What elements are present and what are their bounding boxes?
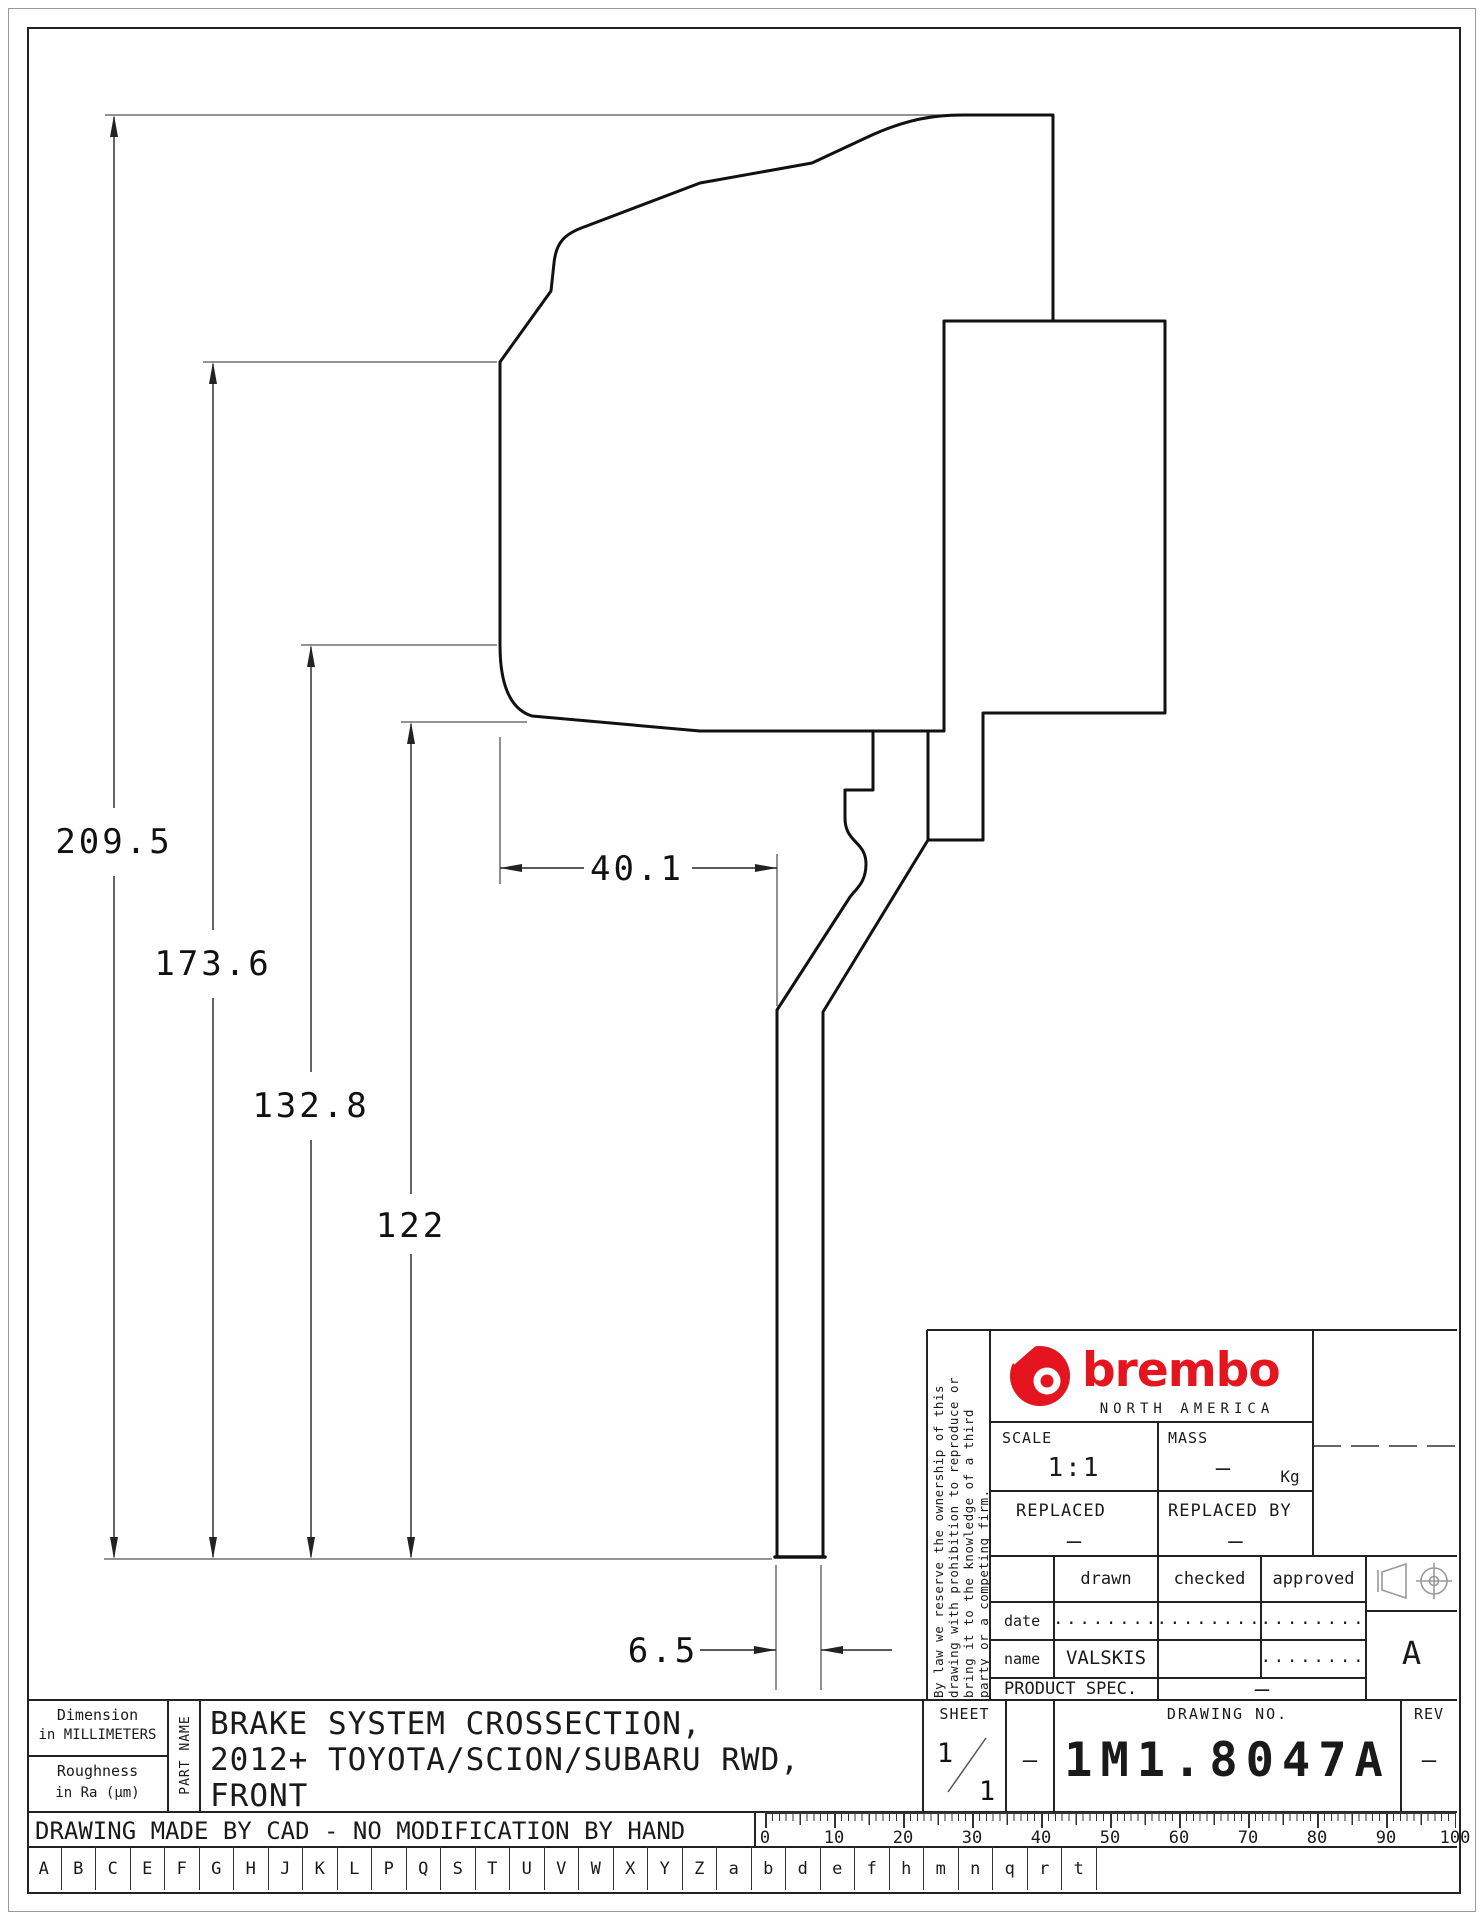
scale-bar-number: 20 <box>893 1828 913 1848</box>
ownership-notice: By law we reserve the ownership of this … <box>929 1332 991 1698</box>
approvals-col-drawn: drawn <box>1054 1560 1158 1598</box>
revision-letter-cell: A <box>27 1847 62 1890</box>
revision-letters-strip: ABCEFGHJKLPQSTUVWXYZabdefhmnqrt <box>27 1847 1457 1890</box>
revision-letter-cell: K <box>303 1847 338 1890</box>
replaced-by-value: – <box>1158 1526 1313 1556</box>
revision-letter-cell: P <box>372 1847 407 1890</box>
revision-letter-cell: H <box>234 1847 269 1890</box>
scale-label: SCALE <box>1002 1428 1152 1448</box>
drawn-by-name: VALSKIS <box>1054 1642 1158 1674</box>
revision-letter-cell: r <box>1028 1847 1063 1890</box>
scale-value: 1:1 <box>990 1450 1158 1486</box>
revision-letter-cell: L <box>338 1847 373 1890</box>
cad-note: DRAWING MADE BY CAD - NO MODIFICATION BY… <box>35 1817 685 1845</box>
ownership-line-2: drawing with prohibition to reproduce or <box>946 1332 961 1698</box>
name-approved-dots: ........ <box>1261 1640 1366 1674</box>
revision-letter-cell: e <box>821 1847 856 1890</box>
revision-letter-cell: W <box>579 1847 614 1890</box>
replaced-by-label: REPLACED BY <box>1168 1500 1318 1522</box>
scale-bar-number: 50 <box>1100 1828 1120 1848</box>
mass-value: – <box>1158 1450 1288 1486</box>
scale-bar-labels: 0102030405060708090100 <box>765 1812 1456 1846</box>
revision-letter-cell: E <box>131 1847 166 1890</box>
replaced-label: REPLACED <box>1016 1500 1156 1522</box>
date-drawn-dots: ........ <box>1054 1602 1158 1636</box>
revision-letter-cell: b <box>752 1847 787 1890</box>
revision-letter-cell: T <box>476 1847 511 1890</box>
ownership-line-3: bring it to the knowledge of a third <box>961 1332 976 1698</box>
extension-lines <box>104 115 958 1690</box>
dim-label-6-5: 6.5 <box>628 1631 698 1671</box>
scale-bar-number: 60 <box>1169 1828 1189 1848</box>
replaced-value: – <box>990 1526 1158 1556</box>
revision-letter-cell: a <box>717 1847 752 1890</box>
approvals-date-label: date <box>1004 1606 1054 1636</box>
revision-letter-cell: t <box>1062 1847 1097 1890</box>
revision-letter-cell: d <box>786 1847 821 1890</box>
scale-bar-number: 0 <box>760 1828 770 1848</box>
revision-letter-cell: n <box>959 1847 994 1890</box>
revision-letter-cell: X <box>614 1847 649 1890</box>
revision-letter-cell: Y <box>648 1847 683 1890</box>
revision-letter-cell: Z <box>683 1847 718 1890</box>
revision-letter-cell: U <box>510 1847 545 1890</box>
part-name-line-2: 2012+ TOYOTA/SCION/SUBARU RWD, <box>210 1742 800 1778</box>
rev-label: REV <box>1401 1704 1457 1724</box>
drawing-sheet: 209.5 173.6 132.8 122 40.1 6.5 <box>0 0 1484 1920</box>
sheet-denominator: 1 <box>979 1776 995 1807</box>
brembo-logo-icon <box>1010 1341 1070 1406</box>
roughness-note-line2: in Ra (μm) <box>27 1784 168 1802</box>
mass-label: MASS <box>1168 1428 1308 1448</box>
dim-label-209-5: 209.5 <box>55 822 172 862</box>
revision-letter-cell: V <box>545 1847 580 1890</box>
part-name-label: PART NAME <box>170 1700 200 1810</box>
revision-letter-cell: h <box>890 1847 925 1890</box>
approvals-col-approved: approved <box>1261 1560 1366 1598</box>
revision-letter-cell: Q <box>407 1847 442 1890</box>
dimension-arrows <box>110 115 843 1654</box>
drawing-no-label: DRAWING NO. <box>1054 1704 1401 1724</box>
sheet-number-fraction: 1 1 <box>937 1738 995 1807</box>
revision-letter-cell: m <box>924 1847 959 1890</box>
dimension-note-line2: in MILLIMETERS <box>27 1726 168 1744</box>
approvals-col-checked: checked <box>1158 1560 1261 1598</box>
revision-letter-cell: f <box>855 1847 890 1890</box>
dimension-lines <box>114 117 892 1650</box>
format-letter: A <box>1366 1625 1457 1680</box>
ownership-line-4: party or a competing firm. <box>976 1332 991 1698</box>
approvals-name-label: name <box>1004 1644 1054 1674</box>
roughness-note-line1: Roughness <box>27 1762 168 1780</box>
revision-letter-cell: F <box>165 1847 200 1890</box>
rev-value: – <box>1401 1740 1457 1780</box>
scale-bar-number: 30 <box>962 1828 982 1848</box>
date-checked-dots: ........ <box>1158 1602 1261 1636</box>
profile-ring-and-hat <box>500 321 1165 840</box>
revision-letter-cell: C <box>96 1847 131 1890</box>
date-approved-dots: ........ <box>1261 1602 1366 1636</box>
rotor-cross-section-profile <box>500 115 1165 1557</box>
scale-bar-number: 70 <box>1238 1828 1258 1848</box>
part-name-line-1: BRAKE SYSTEM CROSSECTION, <box>210 1706 702 1742</box>
profile-neck-right-and-stem <box>823 840 928 1557</box>
ownership-line-1: By law we reserve the ownership of this <box>931 1332 946 1698</box>
dim-label-40-1: 40.1 <box>590 849 684 889</box>
revision-letter-cell: B <box>62 1847 97 1890</box>
scale-bar-number: 90 <box>1376 1828 1396 1848</box>
scale-bar-number: 40 <box>1031 1828 1051 1848</box>
product-spec-label: PRODUCT SPEC. <box>1004 1680 1164 1698</box>
brand-region-label: NORTH AMERICA <box>1082 1400 1292 1418</box>
brembo-wordmark: brembo <box>1082 1342 1312 1398</box>
dim-label-132-8: 132.8 <box>252 1086 369 1126</box>
sheet-label: SHEET <box>923 1704 1006 1724</box>
projection-symbol-icon <box>1378 1563 1452 1599</box>
dim-label-173-6: 173.6 <box>154 944 271 984</box>
dim-label-122: 122 <box>376 1206 446 1246</box>
revision-letter-cell: q <box>993 1847 1028 1890</box>
sheet-numerator: 1 <box>937 1738 953 1769</box>
part-name-line-3: FRONT <box>210 1778 308 1814</box>
revision-letter-cell: G <box>200 1847 235 1890</box>
product-spec-value: – <box>1158 1678 1366 1700</box>
revision-letter-cell: S <box>441 1847 476 1890</box>
scale-bar-number: 100 <box>1440 1828 1471 1848</box>
drawing-no-value: 1M1.8047A <box>1054 1728 1401 1792</box>
profile-top-outer <box>500 115 1053 362</box>
profile-neck-left-and-stem <box>777 731 873 1557</box>
sheet-dash: – <box>1006 1740 1054 1780</box>
dimension-note-line1: Dimension <box>27 1706 168 1724</box>
scale-bar-number: 10 <box>824 1828 844 1848</box>
scale-bar-number: 80 <box>1307 1828 1327 1848</box>
mass-unit-label: Kg <box>1270 1466 1310 1486</box>
revision-letter-cell: J <box>269 1847 304 1890</box>
